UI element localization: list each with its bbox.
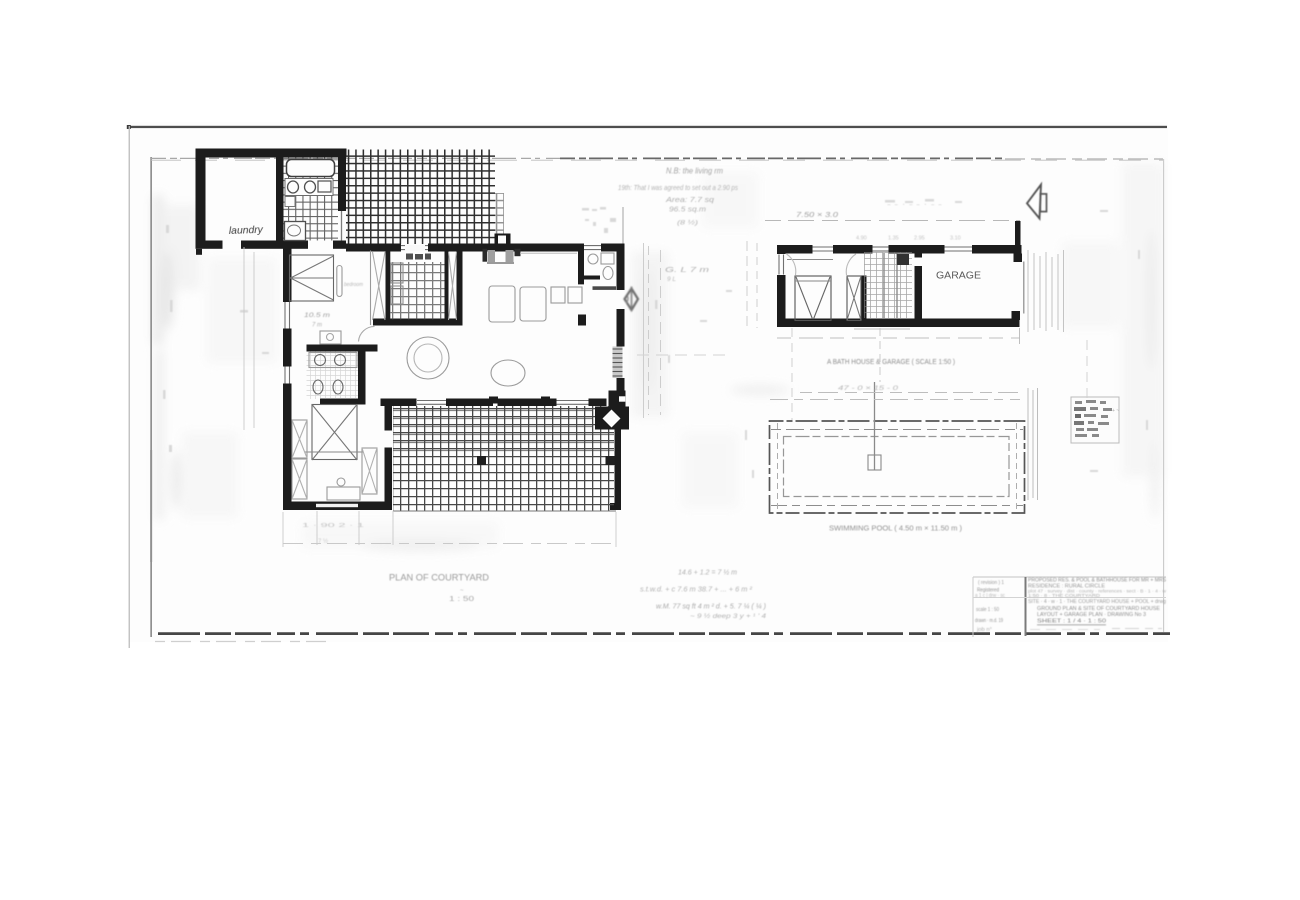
svg-text:s.t.w.d. + c 7.6 m 38.7 + .: s.t.w.d. + c 7.6 m 38.7 + ... + 6 m ²	[640, 587, 753, 594]
svg-text:a 1 c | drw · sc: a 1 c | drw · sc	[975, 593, 1005, 599]
svg-text:w.M. 77 sq ft 4 m ² d. + 5.: w.M. 77 sq ft 4 m ² d. + 5. 7 ¼ ( ¼ )	[656, 604, 766, 611]
svg-text:7 ½: 7 ½	[318, 538, 328, 545]
svg-text:LAYOUT + GARAGE PLAN · DRAWING: LAYOUT + GARAGE PLAN · DRAWING No 3	[1037, 612, 1146, 618]
svg-text:(8 ½): (8 ½)	[677, 219, 698, 227]
svg-text:scale 1 : 50: scale 1 : 50	[976, 607, 999, 613]
svg-text:1 : 50: 1 : 50	[449, 594, 474, 603]
svg-text:~ 9 ½ deep 3 y + ¹ ' 4: ~ 9 ½ deep 3 y + ¹ ' 4	[690, 612, 766, 620]
svg-text:3.10: 3.10	[950, 236, 961, 242]
svg-text:SWIMMING POOL ( 4.50 m × 11.: SWIMMING POOL ( 4.50 m × 11.50 m )	[829, 524, 963, 533]
svg-text:Area: 7.7 sq: Area: 7.7 sq	[665, 195, 715, 204]
svg-text:9 L: 9 L	[667, 276, 676, 283]
svg-text:4.90: 4.90	[856, 236, 867, 242]
svg-text:A BATH HOUSE & GARAGE ( S: A BATH HOUSE & GARAGE ( SCALE 1:50 )	[827, 357, 955, 366]
svg-text:1.35: 1.35	[888, 236, 899, 242]
svg-text:SHEET : 1 / 4 · 1 : 50: SHEET : 1 / 4 · 1 : 50	[1037, 619, 1106, 625]
svg-text:drawn · m.d. 19: drawn · m.d. 19	[975, 618, 1003, 624]
svg-text:7.50 × 3.0: 7.50 × 3.0	[796, 212, 838, 219]
svg-text:GARAGE: GARAGE	[936, 271, 981, 282]
svg-text:PLAN OF COURTYARD: PLAN OF COURTYARD	[389, 573, 490, 583]
svg-text:- - · - - · - -: - - · - - · - -	[887, 202, 942, 208]
svg-text:SITE · 4 · w · 1 · THE COURTYA: SITE · 4 · w · 1 · THE COURTYARD HOUSE +…	[1028, 599, 1166, 605]
svg-text:19th: That I was agreed to set: 19th: That I was agreed to set out a 2.9…	[618, 183, 738, 192]
svg-text:N.B: the living rm: N.B: the living rm	[666, 167, 723, 176]
svg-text:2.95: 2.95	[914, 236, 925, 242]
svg-text:( revision ) 1: ( revision ) 1	[978, 580, 1004, 586]
svg-text:bedroom: bedroom	[344, 282, 363, 288]
svg-text:14.6 + 1.2 = 7 ½ m: 14.6 + 1.2 = 7 ½ m	[678, 569, 737, 577]
svg-text:96.5 sq.m: 96.5 sq.m	[669, 207, 706, 214]
svg-text:10.5 m: 10.5 m	[304, 312, 331, 319]
svg-text:7 m: 7 m	[312, 323, 322, 329]
svg-text:laundry: laundry	[229, 225, 264, 237]
svg-text:~: ~	[460, 588, 464, 594]
svg-text:G. L 7 m: G. L 7 m	[665, 265, 709, 274]
svg-text:job n°: job n°	[976, 627, 992, 633]
svg-text:+ ~: + ~	[1112, 408, 1119, 414]
svg-text:1 · 90 2 · 1: 1 · 90 2 · 1	[302, 523, 364, 529]
svg-text:47 - 0 × 15 - 0: 47 - 0 × 15 - 0	[838, 385, 899, 392]
